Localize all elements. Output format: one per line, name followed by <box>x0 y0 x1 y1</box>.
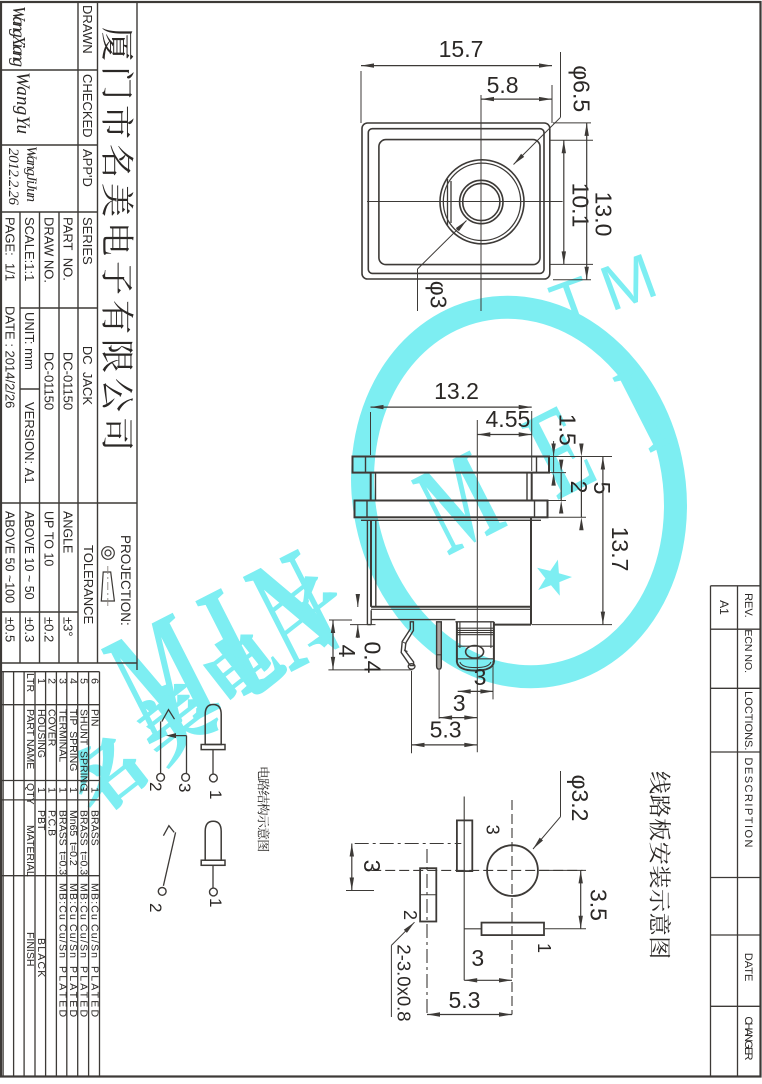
svg-text:QTY: QTY <box>24 783 36 805</box>
svg-text:FINISH: FINISH <box>24 932 36 966</box>
svg-text:PART NAME: PART NAME <box>24 709 36 769</box>
svg-text:UNIT: mm: UNIT: mm <box>22 312 37 370</box>
svg-text:DRAW NO.: DRAW NO. <box>42 217 57 283</box>
svg-text:TOLERANCE: TOLERANCE <box>81 545 96 625</box>
svg-text:APP'D: APP'D <box>80 149 95 187</box>
svg-text:10.1: 10.1 <box>568 183 594 228</box>
svg-text:ECN NO.: ECN NO. <box>742 629 754 673</box>
svg-text:φ3: φ3 <box>426 281 452 309</box>
svg-text:WangJiJun: WangJiJun <box>23 146 39 202</box>
svg-text:PROJECTION:: PROJECTION: <box>118 535 133 626</box>
svg-text:5.3: 5.3 <box>449 987 481 1013</box>
svg-text:13.0: 13.0 <box>591 192 617 237</box>
svg-text:3.5: 3.5 <box>586 889 612 921</box>
svg-text:4: 4 <box>334 645 360 658</box>
svg-text:2012.2.26: 2012.2.26 <box>5 148 21 206</box>
svg-text:LTR: LTR <box>24 673 36 692</box>
svg-text:3: 3 <box>483 825 503 835</box>
svg-text:3: 3 <box>453 690 466 716</box>
svg-text:1: 1 <box>206 898 225 907</box>
svg-text:5.8: 5.8 <box>487 72 519 98</box>
svg-text:CHECKED: CHECKED <box>80 74 95 138</box>
svg-text:LOCTIONS.: LOCTIONS. <box>742 691 754 750</box>
svg-text:3: 3 <box>175 783 194 792</box>
svg-text:φ3.2: φ3.2 <box>567 775 593 822</box>
svg-text:4.55: 4.55 <box>486 406 531 432</box>
svg-text:1.5: 1.5 <box>555 414 581 446</box>
svg-text:φ6.5: φ6.5 <box>568 65 594 112</box>
svg-text:±0.5: ±0.5 <box>3 617 18 642</box>
svg-text:±0.2: ±0.2 <box>42 617 57 642</box>
svg-text:DATE : 2014/2/26: DATE : 2014/2/26 <box>3 306 18 408</box>
svg-text:13.2: 13.2 <box>434 378 479 404</box>
svg-text:DC-01150: DC-01150 <box>61 352 76 410</box>
svg-text:ABOVE 50 ~100: ABOVE 50 ~100 <box>3 511 17 603</box>
svg-text:DC-01150: DC-01150 <box>42 352 57 410</box>
svg-text:WangYu: WangYu <box>12 72 33 134</box>
svg-text:2: 2 <box>146 903 165 912</box>
svg-text:2-3.0x0.8: 2-3.0x0.8 <box>394 944 415 1021</box>
svg-text:DC JACK: DC JACK <box>80 346 95 406</box>
svg-text:0.4: 0.4 <box>360 642 386 674</box>
svg-text:2: 2 <box>146 782 165 791</box>
svg-text:VERSION: A1: VERSION: A1 <box>22 402 37 484</box>
svg-text:DESCRIPTION: DESCRIPTION <box>742 758 754 848</box>
svg-text:SERIES: SERIES <box>80 217 95 265</box>
svg-text:UP TO 10: UP TO 10 <box>42 511 56 566</box>
svg-text:WangXiang: WangXiang <box>9 6 29 67</box>
svg-text:DATE: DATE <box>742 953 754 982</box>
svg-text:13.7: 13.7 <box>607 527 633 572</box>
svg-text:3: 3 <box>474 664 487 690</box>
svg-text:1: 1 <box>534 943 554 953</box>
svg-text:3: 3 <box>359 860 385 873</box>
svg-text:PAGE: 1/1: PAGE: 1/1 <box>3 217 18 281</box>
svg-text:CHANGER: CHANGER <box>742 1016 754 1060</box>
svg-text:2: 2 <box>400 910 420 920</box>
svg-text:SCALE:1:1: SCALE:1:1 <box>22 217 37 281</box>
svg-text:±0.3: ±0.3 <box>22 617 37 642</box>
svg-text:REV.: REV. <box>742 593 754 618</box>
svg-text:5: 5 <box>589 482 615 495</box>
svg-text:MB:Cu: MB:Cu <box>56 883 68 921</box>
svg-text:ANGLE: ANGLE <box>61 511 75 553</box>
svg-text:Cu/Sn: Cu/Sn <box>56 924 68 959</box>
svg-text:PART NO.: PART NO. <box>61 217 76 281</box>
svg-text:2: 2 <box>566 481 592 494</box>
svg-text:A1: A1 <box>717 600 731 615</box>
svg-text:PLATED: PLATED <box>56 966 68 1019</box>
svg-text:DRAWN: DRAWN <box>80 5 95 54</box>
svg-text:5.3: 5.3 <box>430 717 462 743</box>
svg-text:1: 1 <box>206 790 225 799</box>
svg-text:MATERIAL: MATERIAL <box>24 825 36 877</box>
svg-text:15.7: 15.7 <box>439 36 484 62</box>
svg-text:±3°: ±3° <box>61 617 76 637</box>
svg-text:3: 3 <box>471 945 484 971</box>
svg-text:ABOVE 10 ~ 50: ABOVE 10 ~ 50 <box>22 511 36 600</box>
